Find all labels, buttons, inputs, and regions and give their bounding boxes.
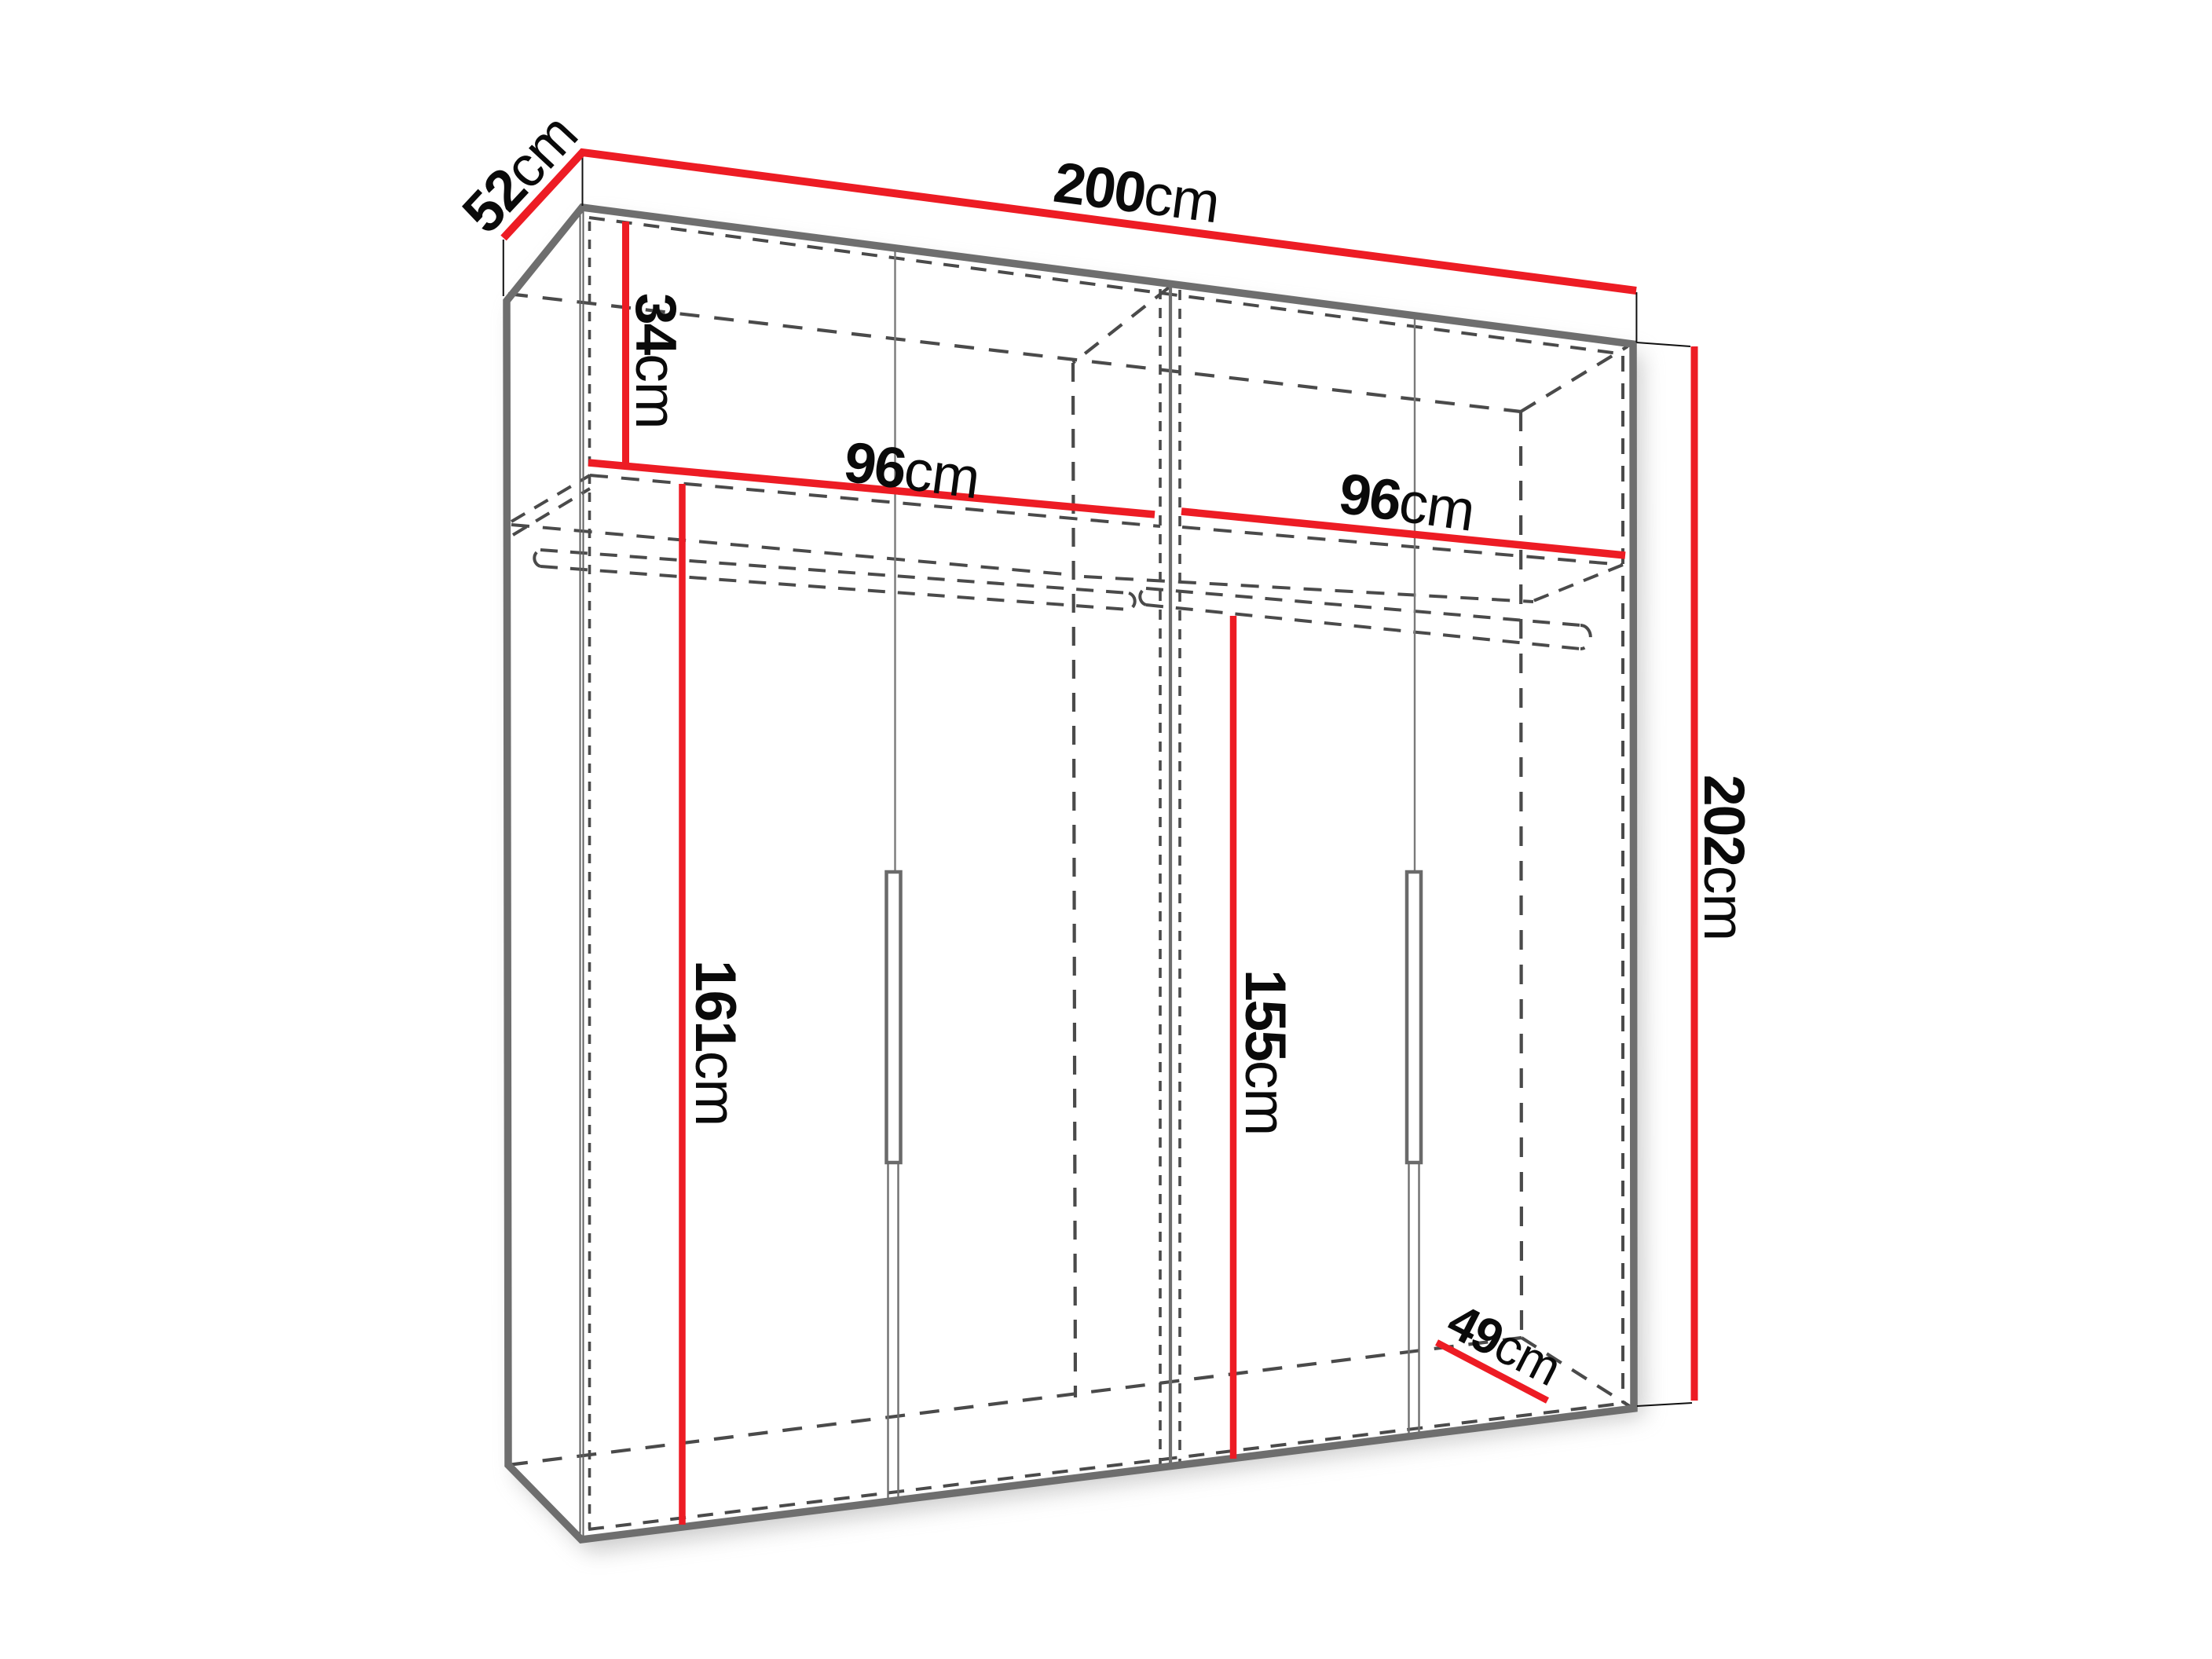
svg-text:155cm: 155cm bbox=[1233, 969, 1297, 1135]
svg-text:34cm: 34cm bbox=[624, 293, 687, 429]
svg-text:161cm: 161cm bbox=[683, 960, 747, 1126]
svg-text:202cm: 202cm bbox=[1692, 775, 1756, 940]
